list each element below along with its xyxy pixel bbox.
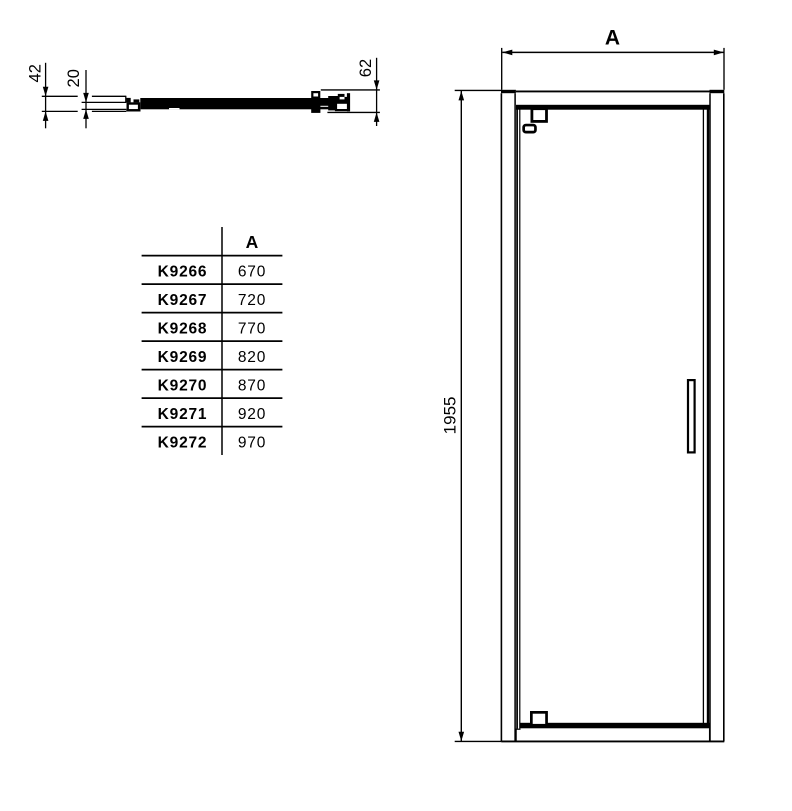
svg-text:K9270: K9270 [158,377,208,394]
svg-text:870: 870 [238,377,266,394]
svg-text:K9269: K9269 [158,349,208,366]
svg-text:K9271: K9271 [158,406,208,423]
svg-text:K9266: K9266 [158,263,208,280]
svg-text:K9268: K9268 [158,320,208,337]
svg-text:920: 920 [238,406,266,423]
svg-text:670: 670 [238,263,266,280]
svg-text:1955: 1955 [441,396,460,434]
svg-text:770: 770 [238,320,266,337]
svg-text:K9267: K9267 [158,292,208,309]
svg-text:820: 820 [238,349,266,366]
svg-text:42: 42 [27,64,45,82]
svg-text:62: 62 [357,59,375,77]
svg-text:A: A [605,27,620,50]
svg-text:720: 720 [238,292,266,309]
svg-text:20: 20 [65,69,83,87]
svg-text:970: 970 [238,434,266,451]
svg-text:K9272: K9272 [158,434,208,451]
svg-text:A: A [246,232,259,252]
